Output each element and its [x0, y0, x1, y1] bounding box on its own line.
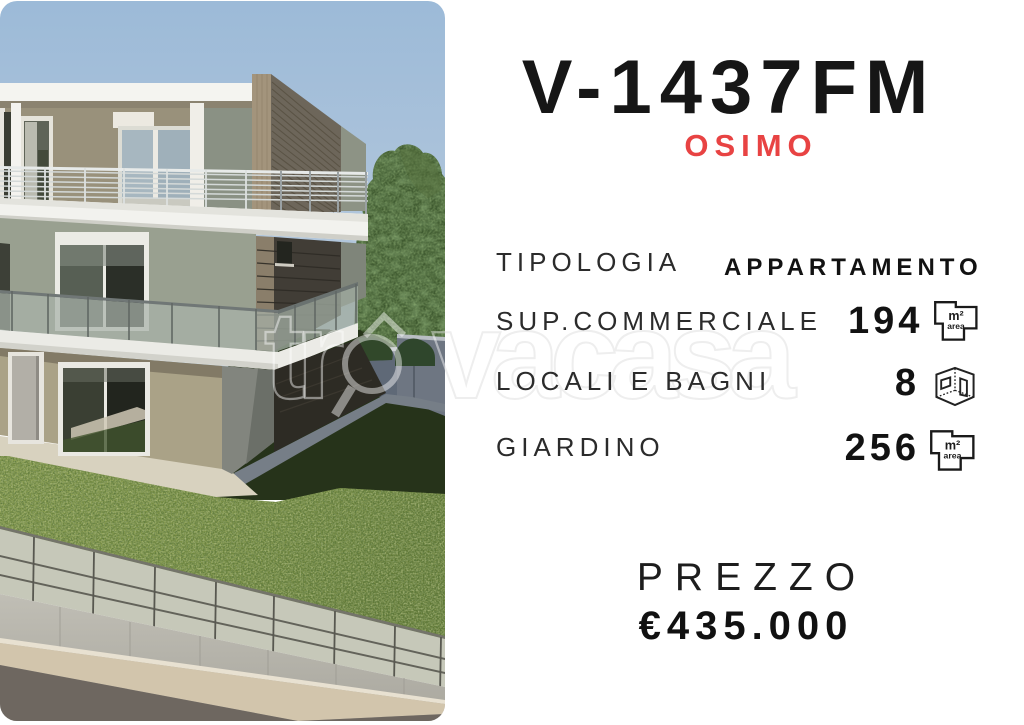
svg-text:area: area — [947, 321, 965, 331]
svg-text:vacasa: vacasa — [432, 287, 445, 425]
svg-text:area: area — [944, 451, 962, 461]
svg-text:tr: tr — [264, 287, 343, 425]
